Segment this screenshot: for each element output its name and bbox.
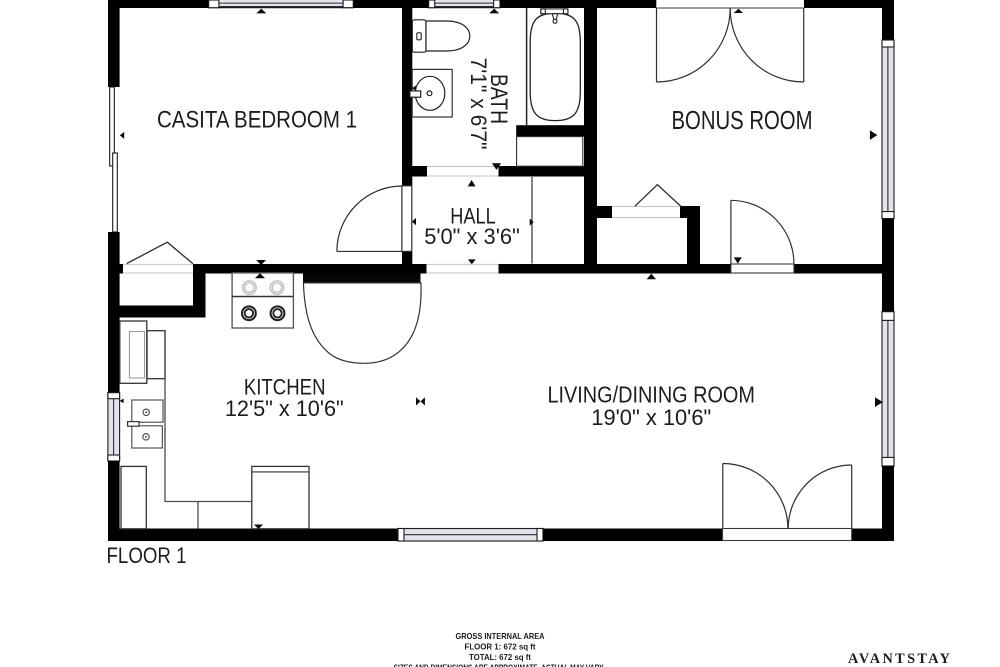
svg-text:FLOOR 1: 672 sq ft: FLOOR 1: 672 sq ft	[465, 641, 536, 651]
svg-text:AVANTSTAY: AVANTSTAY	[848, 651, 951, 667]
svg-text:LIVING/DINING ROOM: LIVING/DINING ROOM	[547, 382, 755, 408]
svg-text:5'0" x 3'6": 5'0" x 3'6"	[424, 224, 520, 249]
svg-text:12'5" x 10'6": 12'5" x 10'6"	[225, 396, 344, 421]
svg-text:TOTAL: 672 sq ft: TOTAL: 672 sq ft	[469, 652, 531, 662]
svg-text:FLOOR 1: FLOOR 1	[107, 543, 187, 568]
svg-text:GROSS INTERNAL AREA: GROSS INTERNAL AREA	[456, 631, 545, 641]
svg-text:7'1" x 6'7": 7'1" x 6'7"	[466, 58, 491, 150]
svg-text:19'0" x 10'6": 19'0" x 10'6"	[591, 405, 711, 430]
svg-text:BONUS ROOM: BONUS ROOM	[672, 105, 813, 135]
svg-text:CASITA BEDROOM 1: CASITA BEDROOM 1	[157, 107, 357, 134]
svg-text:SIZES AND DIMENSIONS ARE APPRO: SIZES AND DIMENSIONS ARE APPROXIMATE. AC…	[394, 663, 604, 667]
